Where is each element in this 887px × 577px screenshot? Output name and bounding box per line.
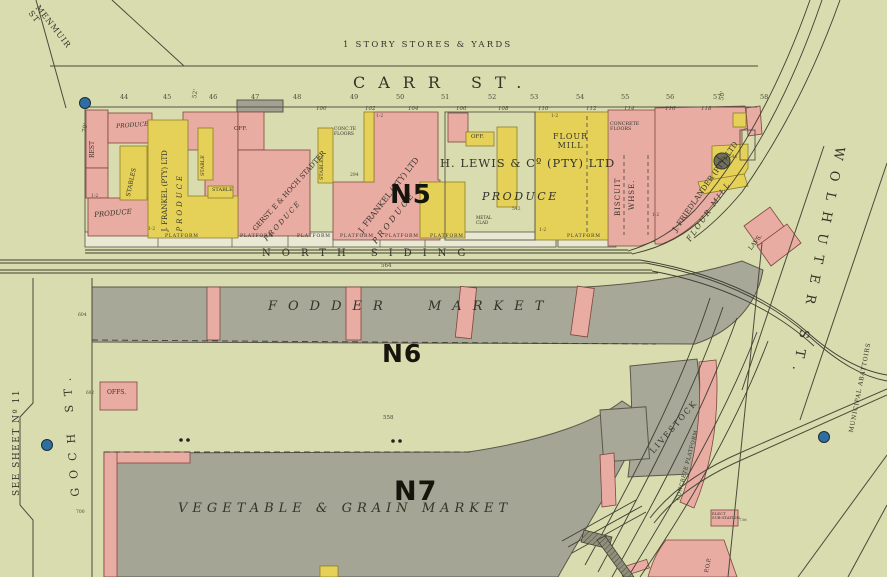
fodder-divider-1 [207,287,220,340]
frankel-name: J. FRANKEL (PTY) LTD [161,150,169,231]
lot-number: 44 [120,94,128,101]
street-number: 112 [586,106,597,112]
lot-number: 48 [293,94,301,101]
street-number: 110 [538,106,549,112]
storey-mark: 1-2 [91,194,98,199]
lot-number: 46 [209,94,217,101]
lot-number: 52 [488,94,496,101]
parcel-number: 604 [78,313,87,318]
h-lewis-label: H. LEWIS & Cº (PTY) LTD [440,157,615,170]
hydrant-dot-3 [819,432,830,443]
lewis-annex [448,113,468,142]
block-n6-label: N6 [382,340,422,368]
pink-strip-livestock [600,453,616,507]
street-number: 100 [316,106,327,112]
lot-number: 50 [396,94,404,101]
storey-mark: 1-2 [652,213,659,218]
parcel-number: 542 [512,207,521,212]
gate-dot [179,438,183,442]
yellow-dashed-strip [364,112,374,182]
siding-number: 564 [381,263,392,269]
platform-label: PLATFORM [385,234,419,239]
platform-label: PLATFORM [340,234,374,239]
lot-number: 47 [251,94,259,101]
platform-label: PLATFORM [240,234,274,239]
hydrant-dot-1 [80,98,91,109]
frankel-use: PRODUCE [176,173,184,232]
north-siding-label: NORTH SIDING [262,248,476,259]
concrete-floors-label: CONCRETE FLOORS [610,122,639,133]
street-number: 104 [408,106,419,112]
platform-label: PLATFORM [430,234,464,239]
lot-number: 56 [666,94,674,101]
lot-number: 54 [576,94,584,101]
storey-mark: 1-2 [539,228,546,233]
map-sheet: MENMUIR ST 1 STORY STORES & YARDS CARR S… [0,0,887,577]
goch-st-lines [20,278,92,577]
parcel-number: 602 [86,391,94,396]
street-number: 116 [665,106,676,112]
offs-label: OFFS. [107,390,126,397]
gate-dot [398,439,402,443]
platform-label: PLATFORM [297,234,331,239]
lot-number: 51 [441,94,449,101]
carr-st-label: CARR ST. [353,74,534,92]
parcel-number: 700 [76,510,85,515]
veg-market-shed [320,566,338,577]
metal-clad-label: METAL CLAD [476,216,492,225]
stables-label: STABLES [320,156,326,180]
lot-number: 49 [350,94,358,101]
frankel-building-label: J. FRANKEL (PTY) LTD PRODUCE [154,150,185,236]
parcel-number: 558 [383,415,394,421]
stable-label: STABLE [212,188,233,194]
rest-label: REST [90,141,97,158]
friedlander-yellow-c [733,113,746,127]
lot-number: 45 [163,94,171,101]
veg-market-strip-left [104,452,117,577]
vegetable-grain-market-building [104,401,646,577]
storey-mark: 1-2 [551,114,558,119]
hydrant-dot-2 [42,440,53,451]
block-n5-label: N5 [390,181,432,210]
gray-roof [237,100,283,112]
small-corner-building [746,106,762,136]
off-label: OFF. [471,134,484,140]
street-number: 108 [498,106,509,112]
street-number: 102 [365,106,376,112]
produce-label: PRODUCE [482,191,559,203]
flour-mill-label: FLOUR MILL [553,133,588,151]
storey-mark: 1-2 [376,114,383,119]
see-sheet-note: SEE SHEET Nº 11 [12,389,22,496]
parcel-number: 736 [739,518,747,522]
lot-number: 58 [760,94,768,101]
biscuit-label: BISCUIT [615,178,623,216]
rest-building [86,110,108,168]
street-number: 114 [624,106,635,112]
gate-dot [186,438,190,442]
elect-substation-label: ELECT SUB-STATION [712,512,740,521]
whse-label: WHSE. [629,180,637,210]
fodder-market-label2: MARKET [428,300,554,315]
gate-dot [391,439,395,443]
conc-floors-label: CONC.TE FLOORS [334,127,356,137]
veg-market-label: VEGETABLE & GRAIN MARKET [178,502,512,517]
parcel-number: 544 [729,155,737,160]
parcel-number: 294 [350,173,359,178]
stores-yards-label: 1 STORY STORES & YARDS [343,41,512,51]
lot-number: 53 [530,94,538,101]
off-label: OFF. [234,126,247,132]
lot-number: 55 [621,94,629,101]
street-number: 106 [456,106,467,112]
storey-mark: 1-2 [148,227,155,232]
platform-label: PLATFORM [567,234,601,239]
stable-label: STABLE [201,155,207,176]
fodder-market-label: FODDER [268,300,394,315]
street-number: 118 [701,106,712,112]
platform-label: PLATFORM [165,234,199,239]
